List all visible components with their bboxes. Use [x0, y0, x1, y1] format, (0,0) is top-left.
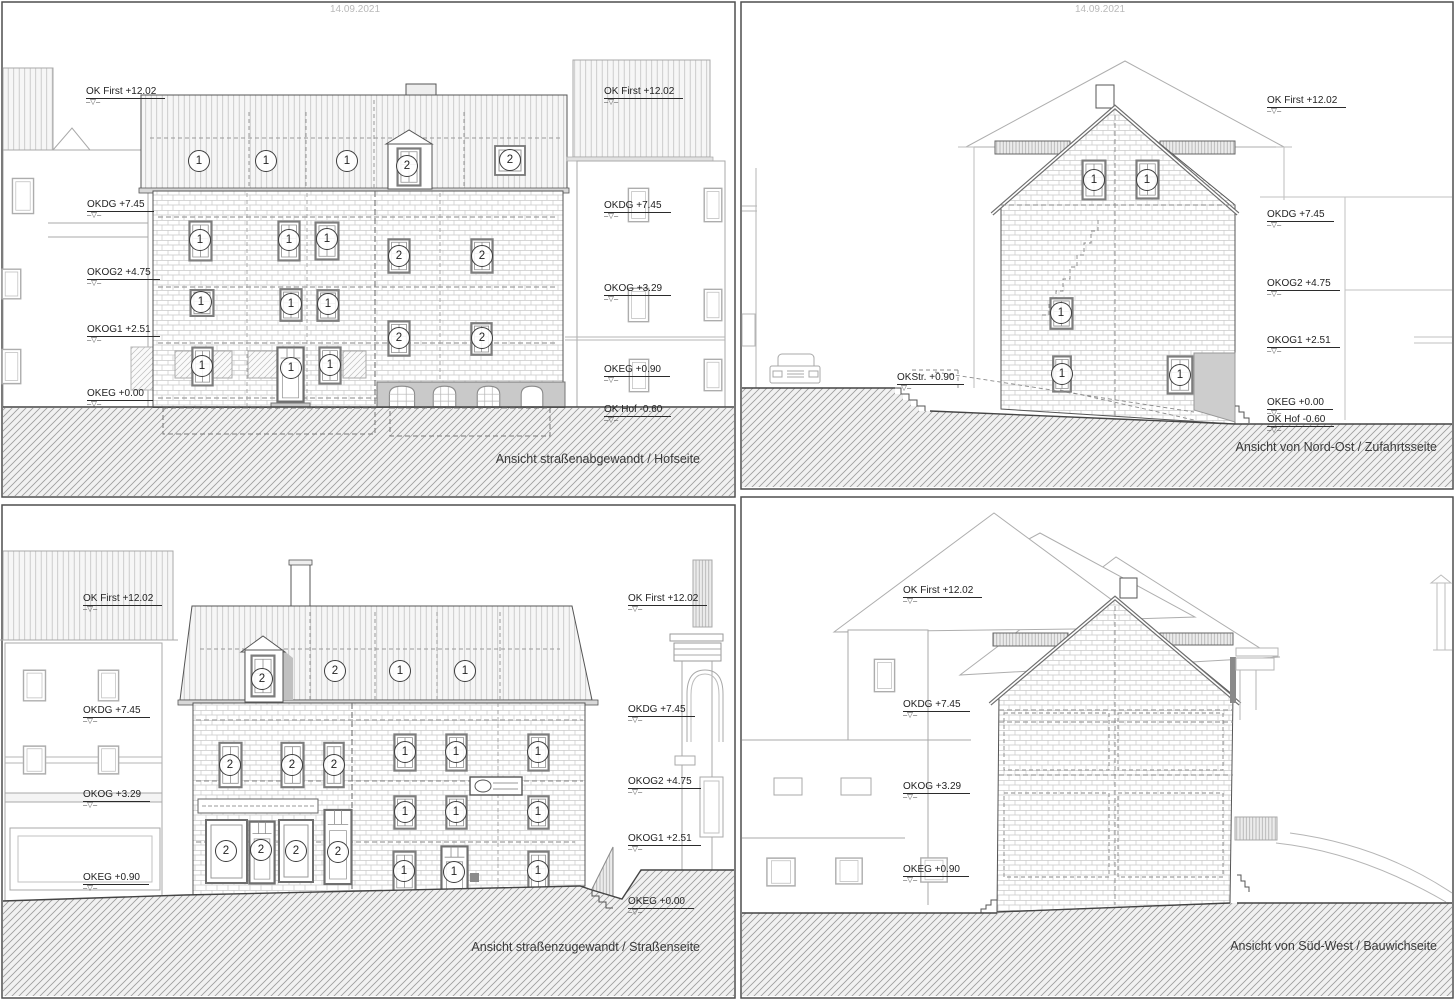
facade-sign — [470, 777, 522, 795]
elevation-drawing-sheet: 14.09.2021 14.09.2021 Ansicht straßenabg… — [0, 0, 1455, 1000]
drawing-linework — [0, 0, 1455, 1000]
car-icon — [770, 354, 820, 383]
